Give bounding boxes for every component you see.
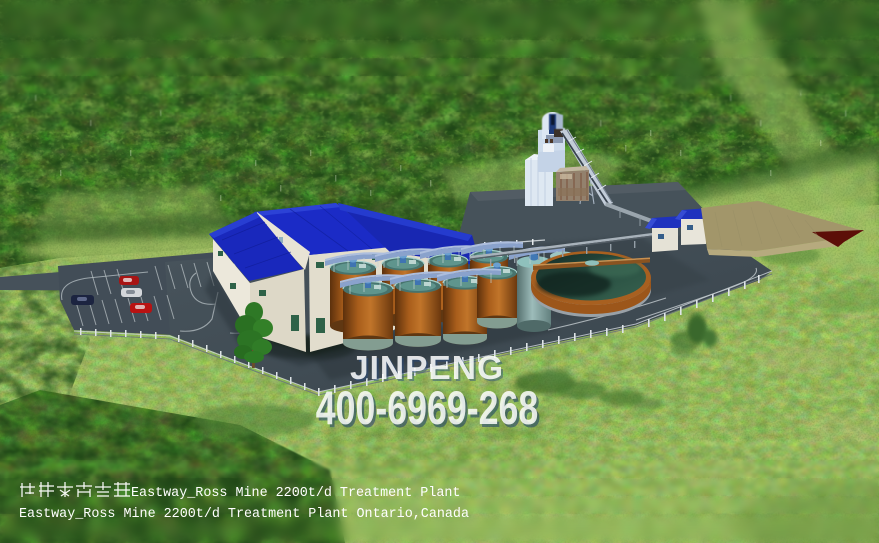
svg-text:400-6969-268: 400-6969-268 <box>316 381 538 434</box>
svg-text:Eastway_Ross Mine 2200t/d Trea: Eastway_Ross Mine 2200t/d Treatment Plan… <box>131 486 460 501</box>
svg-text:Eastway_Ross Mine 2200t/d Trea: Eastway_Ross Mine 2200t/d Treatment Plan… <box>19 507 469 522</box>
